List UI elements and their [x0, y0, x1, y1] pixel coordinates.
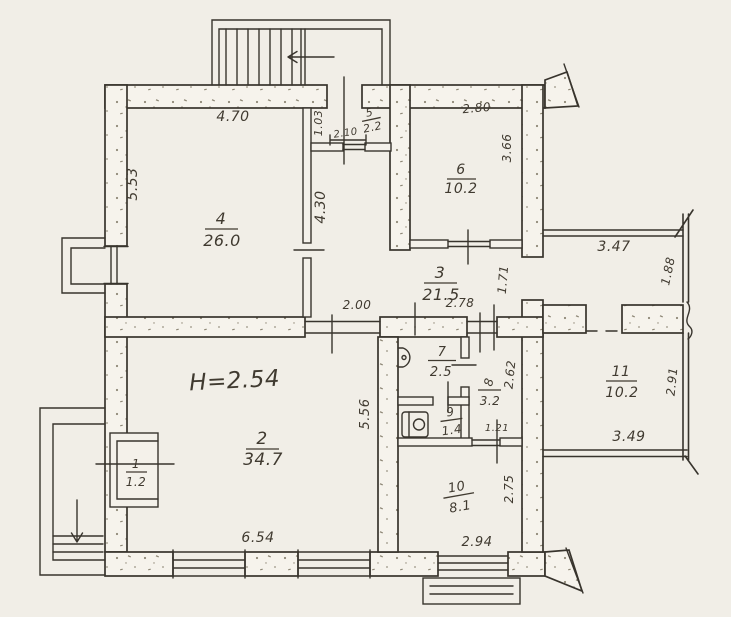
room-area: 8.1	[448, 498, 472, 517]
dim-room4-depth: 5.53	[125, 167, 141, 200]
dim-room4-width: 4.70	[216, 109, 249, 125]
room-label-6: 6 10.2	[444, 162, 477, 197]
room-area: 2.2	[362, 119, 383, 136]
room-label-2: 2 34.7	[243, 429, 283, 470]
dim-room5-depth: 1.03	[312, 110, 325, 137]
room-area: 26.0	[203, 231, 241, 250]
floor-plan-drawing: 1 1.2 2 34.7 3 21.5 4 26.0 5 2.2 6 10.2	[0, 0, 731, 617]
room-label-4: 4 26.0	[203, 209, 241, 250]
dim-room8-depth: 2.62	[502, 360, 519, 390]
dim-terrace-width: 3.47	[597, 239, 630, 255]
dim-room2-door: 2.00	[343, 298, 372, 312]
room-label-10: 10 8.1	[441, 478, 478, 518]
bottom-staircase	[40, 408, 105, 575]
room-number: 8	[481, 376, 497, 387]
window	[104, 247, 128, 285]
dim-room11-width: 3.49	[612, 429, 645, 445]
room-area: 3.2	[480, 394, 501, 408]
windows	[104, 247, 370, 579]
stair-direction-arrow-icon	[72, 500, 83, 542]
entrance-porch	[423, 556, 520, 604]
room-area: 10.2	[444, 181, 477, 197]
left-balcony	[62, 238, 105, 293]
dim-hall-width: 2.78	[446, 296, 475, 310]
room-label-11: 11 10.2	[605, 364, 638, 401]
room-label-5: 5 2.2	[359, 104, 384, 135]
room-number: 6	[456, 162, 465, 178]
dim-room2-depth: 5.56	[358, 399, 373, 430]
stair-treads	[53, 536, 103, 552]
room-number: 11	[612, 364, 631, 380]
dim-room10-width: 2.94	[462, 535, 493, 550]
bathroom-fixtures	[398, 348, 428, 437]
window	[173, 550, 245, 578]
room-area: 34.7	[243, 450, 283, 470]
toilet-icon	[402, 412, 428, 437]
dim-room6-depth: 3.66	[500, 134, 514, 163]
room-number: 3	[435, 263, 446, 282]
window	[298, 550, 370, 578]
sink-icon	[398, 348, 410, 367]
dim-room6-width: 2.80	[462, 100, 492, 116]
stair-direction-arrow-icon	[288, 52, 334, 63]
dim-room8-width: 1.21	[485, 423, 509, 434]
top-staircase	[212, 20, 390, 85]
room-area: 2.5	[430, 365, 452, 380]
room-number: 4	[216, 209, 227, 228]
interior-bearing-walls	[105, 305, 683, 552]
room-number: 2	[256, 429, 267, 449]
floor-plan-sheet: 1 1.2 2 34.7 3 21.5 4 26.0 5 2.2 6 10.2	[0, 0, 731, 617]
dim-room11-depth: 2.91	[664, 367, 681, 397]
dim-hall-depth: 4.30	[313, 190, 329, 223]
room-number: 7	[438, 345, 447, 360]
room-area: 1.2	[126, 475, 147, 489]
room-label-8: 8 3.2	[478, 376, 501, 408]
dim-room2-width: 6.54	[241, 530, 274, 546]
room-number: 9	[445, 404, 455, 419]
dim-hall-gap: 1.71	[495, 265, 511, 295]
room-label-7: 7 2.5	[428, 345, 456, 380]
room-number: 1	[132, 457, 140, 471]
dim-room5-width: 2.10	[333, 126, 359, 140]
dim-room10-depth: 2.75	[502, 475, 516, 504]
dim-terrace-depth: 1.88	[658, 256, 678, 287]
ceiling-height-note: H=2.54	[189, 366, 281, 397]
room-area: 1.4	[441, 422, 463, 439]
room-area: 10.2	[605, 385, 638, 401]
